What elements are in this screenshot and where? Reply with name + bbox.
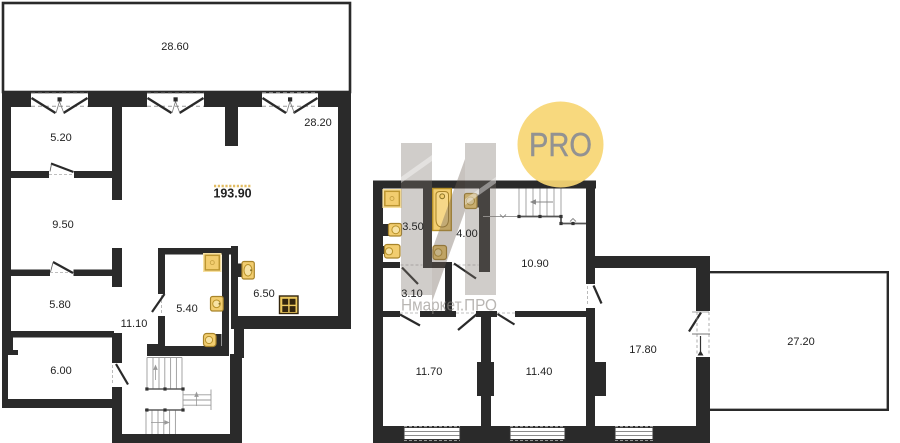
svg-text:28.20: 28.20 (304, 117, 332, 129)
svg-text:9.50: 9.50 (52, 219, 73, 231)
svg-text:11.40: 11.40 (526, 366, 553, 378)
svg-text:3.10: 3.10 (401, 288, 422, 300)
svg-text:6.50: 6.50 (253, 288, 274, 300)
svg-text:5.40: 5.40 (176, 303, 197, 315)
svg-text:10.90: 10.90 (521, 258, 549, 270)
svg-text:4.00: 4.00 (456, 228, 477, 240)
svg-text:17.80: 17.80 (629, 344, 657, 356)
svg-text:27.20: 27.20 (787, 336, 815, 348)
svg-text:11.70: 11.70 (416, 366, 443, 378)
svg-text:11.10: 11.10 (121, 318, 148, 330)
svg-text:5.80: 5.80 (49, 299, 70, 311)
svg-text:3.50: 3.50 (402, 221, 423, 233)
svg-text:6.00: 6.00 (50, 365, 71, 377)
svg-text:PRO: PRO (529, 127, 592, 164)
svg-text:5.20: 5.20 (50, 132, 71, 144)
svg-text:28.60: 28.60 (161, 41, 189, 53)
svg-text:193.90: 193.90 (213, 187, 251, 201)
